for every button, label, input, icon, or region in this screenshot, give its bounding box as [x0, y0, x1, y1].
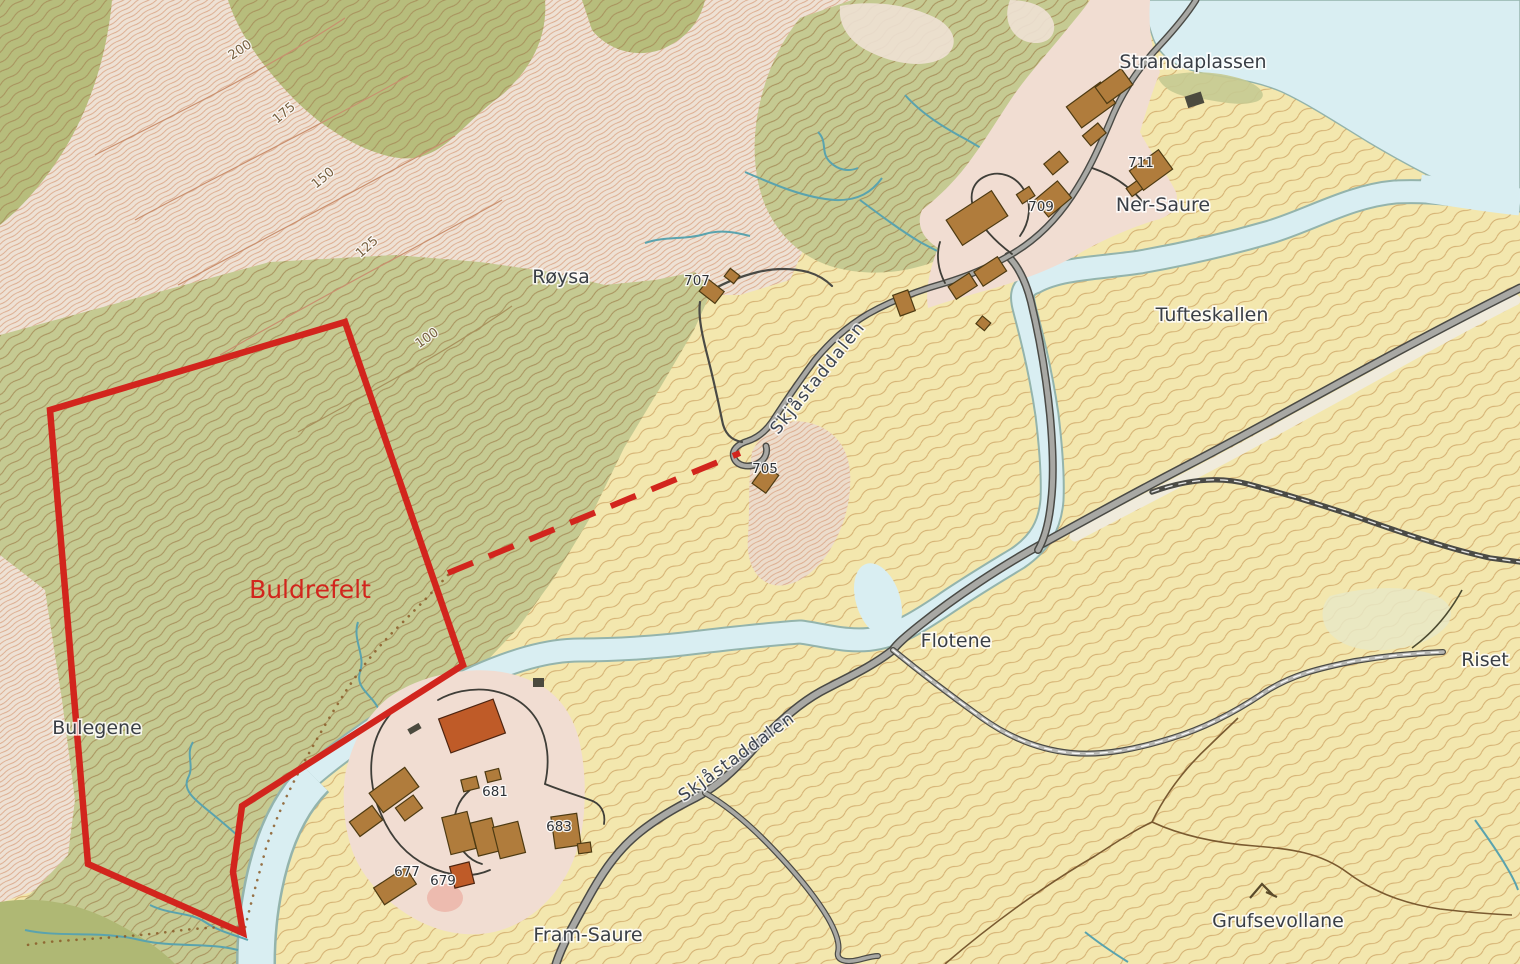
topo-map-canvas[interactable]: Strandaplassen Ner-Saure Tufteskallen Rø… — [0, 0, 1520, 964]
place-label-bulegene: Bulegene — [52, 717, 142, 739]
building-number-677: 677 — [394, 864, 420, 880]
place-label-grufsevollane: Grufsevollane — [1212, 910, 1344, 932]
place-label-fram-saure: Fram-Saure — [533, 924, 642, 946]
building-number-679: 679 — [430, 873, 456, 889]
place-label-strandaplassen: Strandaplassen — [1119, 51, 1266, 73]
building-number-707: 707 — [684, 273, 710, 289]
building-number-683: 683 — [546, 819, 572, 835]
place-label-tufteskallen: Tufteskallen — [1155, 304, 1269, 326]
place-label-ner-saure: Ner-Saure — [1116, 194, 1210, 216]
building-number-705: 705 — [752, 461, 778, 477]
topo-map[interactable]: Strandaplassen Ner-Saure Tufteskallen Rø… — [0, 0, 1520, 964]
place-label-roysa: Røysa — [532, 266, 590, 288]
building-number-711: 711 — [1128, 155, 1154, 171]
building-number-681: 681 — [482, 784, 508, 800]
place-label-riset: Riset — [1461, 649, 1509, 671]
region-label-buldrefelt: Buldrefelt — [249, 575, 371, 604]
place-label-flotene: Flotene — [921, 630, 992, 652]
building-number-709: 709 — [1028, 199, 1054, 215]
